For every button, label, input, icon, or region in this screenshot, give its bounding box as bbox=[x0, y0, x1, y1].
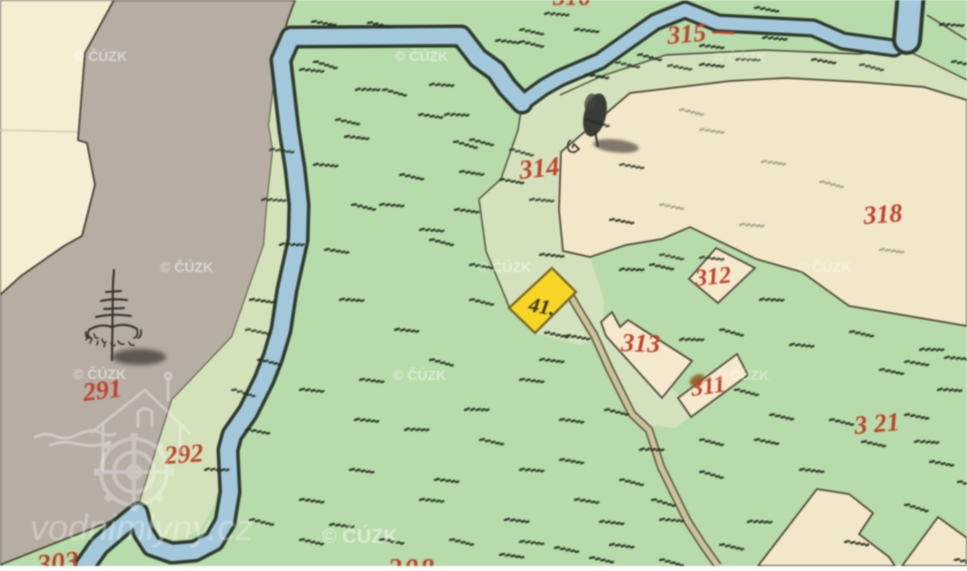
svg-text:3 21: 3 21 bbox=[852, 407, 901, 440]
svg-text:303: 303 bbox=[34, 546, 80, 566]
svg-text:© ČÚZK: © ČÚZK bbox=[798, 258, 851, 275]
svg-text:© ČÚZK: © ČÚZK bbox=[393, 366, 446, 383]
svg-text:315: 315 bbox=[665, 18, 707, 50]
svg-text:© ČÚZK: © ČÚZK bbox=[713, 48, 766, 65]
svg-text:© ČÚZK: © ČÚZK bbox=[322, 524, 398, 548]
svg-text:316: 316 bbox=[552, 0, 591, 11]
svg-text:41.: 41. bbox=[526, 292, 557, 320]
svg-text:314: 314 bbox=[516, 151, 560, 185]
svg-text:© ČÚZK: © ČÚZK bbox=[478, 258, 531, 275]
svg-text:318: 318 bbox=[861, 198, 903, 230]
svg-text:© ČÚZK: © ČÚZK bbox=[74, 47, 127, 64]
svg-text:vodnimlyny.cz: vodnimlyny.cz bbox=[30, 507, 253, 548]
svg-text:313: 313 bbox=[620, 328, 661, 358]
svg-text:© ČÚZK: © ČÚZK bbox=[73, 365, 126, 382]
svg-text:© ČÚZK: © ČÚZK bbox=[160, 258, 213, 275]
svg-text:292: 292 bbox=[162, 438, 204, 470]
svg-text:© ČÚZK: © ČÚZK bbox=[395, 47, 448, 64]
svg-text:312: 312 bbox=[693, 262, 733, 292]
svg-text:© ČÚZK: © ČÚZK bbox=[716, 366, 769, 383]
svg-text:308: 308 bbox=[387, 554, 436, 566]
